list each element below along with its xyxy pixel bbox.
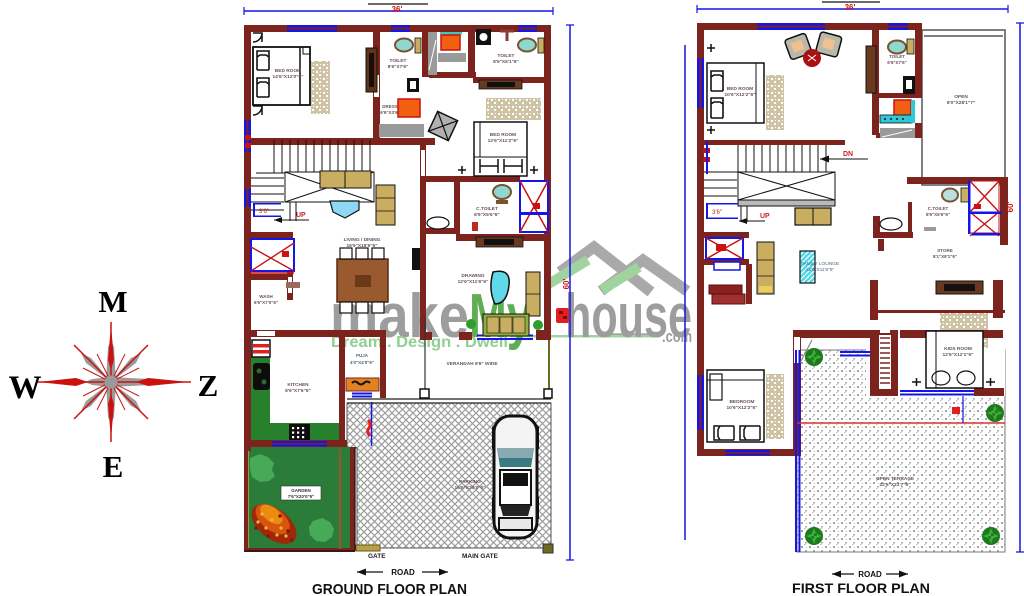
svg-text:Z: Z [198,368,219,403]
svg-text:10'6"X12'2"6": 10'6"X12'2"6" [727,405,758,411]
svg-text:DRAWING: DRAWING [461,273,484,279]
svg-text:6'6"X7'6": 6'6"X7'6" [887,60,906,65]
svg-text:8'6"X5'6"6": 8'6"X5'6"6" [926,212,950,217]
svg-text:GATE: GATE [368,553,386,560]
svg-text:12'6"X11'2"6": 12'6"X11'2"6" [488,138,519,144]
svg-text:14'6"X12'0"6": 14'6"X12'0"6" [273,74,304,80]
svg-text:.com: .com [662,327,692,346]
svg-text:60': 60' [1006,202,1015,213]
svg-text:KITCHEN: KITCHEN [287,382,309,388]
svg-text:6'6"X7'0"6": 6'6"X7'0"6" [254,300,278,305]
svg-text:UP: UP [760,213,770,220]
svg-text:TOILET: TOILET [889,54,905,59]
svg-text:BED ROOM: BED ROOM [275,68,301,74]
svg-text:OPEN TERRACE: OPEN TERRACE [876,476,915,482]
svg-text:8'6"X7'6"6": 8'6"X7'6"6" [285,388,311,394]
svg-text:OPEN: OPEN [954,94,968,100]
svg-text:TOILET: TOILET [390,58,407,64]
svg-text:6'6"X3'6": 6'6"X3'6" [380,110,399,115]
svg-text:22'6"X21'7"6": 22'6"X21'7"6" [880,482,911,488]
svg-text:FIRST FLOOR PLAN: FIRST FLOOR PLAN [792,580,930,596]
svg-text:8'6"X7'6": 8'6"X7'6" [388,64,409,70]
svg-text:8'1"X8'1"6": 8'1"X8'1"6" [933,254,957,259]
svg-text:STORE: STORE [937,248,952,253]
svg-text:BED ROOM: BED ROOM [727,86,753,92]
svg-text:W: W [9,370,42,406]
svg-text:E: E [103,449,124,484]
svg-text:8'6"X6'1"6": 8'6"X6'1"6" [493,59,519,65]
svg-text:KIDS ROOM: KIDS ROOM [944,346,972,352]
svg-text:BED ROOM: BED ROOM [490,132,516,138]
svg-text:TOILET: TOILET [498,53,515,59]
svg-text:WASH: WASH [259,294,273,299]
svg-text:C.TOILET: C.TOILET [928,206,949,211]
svg-text:M: M [98,284,127,319]
svg-text:8'0"X28'1"7": 8'0"X28'1"7" [947,100,975,106]
svg-text:4'0"X4'0"6": 4'0"X4'0"6" [350,360,374,365]
svg-text:12'6"X12'1"6": 12'6"X12'1"6" [943,352,974,358]
svg-text:GROUND FLOOR PLAN: GROUND FLOOR PLAN [312,581,467,596]
svg-text:MAIN GATE: MAIN GATE [462,553,499,560]
svg-text:GARDEN: GARDEN [291,488,311,493]
svg-text:DRESS: DRESS [382,104,398,109]
svg-text:36': 36' [392,5,403,14]
svg-text:36': 36' [845,3,856,12]
svg-text:PUJA: PUJA [356,353,369,358]
svg-text:DN: DN [843,151,853,158]
svg-text:BEDROOM: BEDROOM [729,399,754,405]
svg-text:LIVING / DINING: LIVING / DINING [344,237,381,243]
svg-text:ROAD: ROAD [858,570,882,579]
svg-text:FAMILY LOUNGE: FAMILY LOUNGE [801,261,839,267]
svg-text:7'6"X20'0"6": 7'6"X20'0"6" [288,494,315,499]
svg-text:PARKING: PARKING [459,479,481,485]
svg-text:16'6"X20'0"6": 16'6"X20'0"6" [455,485,486,491]
svg-text:60': 60' [562,279,571,290]
svg-text:12'6"X11'6"6": 12'6"X11'6"6" [458,279,489,285]
svg-text:UP: UP [296,212,306,219]
svg-text:ROAD: ROAD [391,568,415,577]
svg-text:10'6"X12'2"6": 10'6"X12'2"6" [725,92,756,98]
svg-text:C.TOILET: C.TOILET [476,206,498,212]
svg-text:8'6"X5'6"6": 8'6"X5'6"6" [474,212,500,218]
svg-text:VERANDAH 8'6" WIDE: VERANDAH 8'6" WIDE [446,361,498,367]
svg-text:12'6"X11'6"6": 12'6"X11'6"6" [806,267,835,273]
svg-text:3'6": 3'6" [712,210,722,216]
svg-text:3'6": 3'6" [259,209,269,215]
